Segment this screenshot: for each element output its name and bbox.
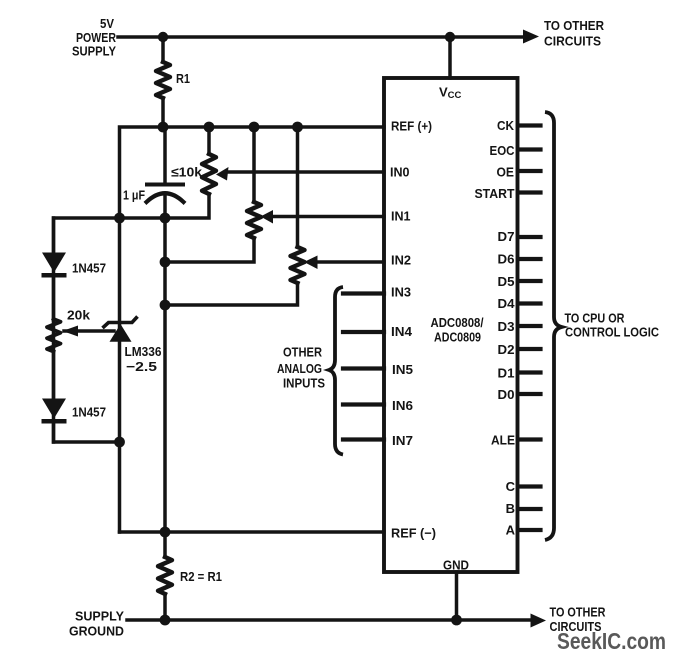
- svg-text:TO OTHER: TO OTHER: [550, 605, 607, 620]
- svg-text:IN2: IN2: [391, 253, 411, 268]
- svg-text:START: START: [475, 186, 515, 201]
- svg-text:D4: D4: [498, 296, 516, 311]
- svg-text:IN5: IN5: [392, 362, 413, 377]
- svg-text:ANALOG: ANALOG: [277, 361, 322, 376]
- svg-text:C: C: [506, 479, 516, 494]
- svg-text:D6: D6: [498, 252, 515, 267]
- svg-text:IN7: IN7: [392, 433, 413, 448]
- svg-text:TO CPU OR: TO CPU OR: [565, 311, 626, 326]
- svg-text:R2 = R1: R2 = R1: [180, 569, 222, 584]
- svg-text:1N457: 1N457: [72, 261, 106, 276]
- svg-text:D2: D2: [498, 342, 515, 357]
- svg-text:−2.5: −2.5: [126, 359, 157, 374]
- svg-text:OTHER: OTHER: [283, 345, 323, 360]
- svg-text:20k: 20k: [67, 308, 91, 323]
- svg-text:GROUND: GROUND: [69, 624, 124, 639]
- svg-text:D0: D0: [498, 387, 515, 402]
- svg-text:SUPPLY: SUPPLY: [72, 44, 116, 59]
- svg-text:≤10k: ≤10k: [171, 165, 203, 180]
- svg-text:REF (+): REF (+): [391, 119, 432, 134]
- svg-text:IN3: IN3: [391, 285, 411, 300]
- svg-text:ALE: ALE: [491, 433, 515, 448]
- svg-text:D1: D1: [498, 366, 515, 381]
- svg-text:SUPPLY: SUPPLY: [75, 609, 124, 624]
- svg-text:D7: D7: [498, 229, 515, 244]
- svg-text:D5: D5: [498, 274, 515, 289]
- svg-text:CK: CK: [497, 118, 515, 133]
- svg-text:IN0: IN0: [390, 165, 410, 180]
- svg-text:SeekIC.com: SeekIC.com: [557, 628, 666, 654]
- svg-text:1 μF: 1 μF: [123, 188, 145, 203]
- svg-text:OE: OE: [497, 165, 515, 180]
- svg-text:CONTROL LOGIC: CONTROL LOGIC: [565, 325, 660, 340]
- svg-text:GND: GND: [443, 558, 469, 573]
- svg-text:CIRCUITS: CIRCUITS: [544, 34, 601, 49]
- svg-text:IN1: IN1: [391, 209, 411, 224]
- svg-text:TO OTHER: TO OTHER: [544, 18, 605, 33]
- svg-text:REF (−): REF (−): [391, 526, 436, 541]
- svg-text:ADC0808/: ADC0808/: [431, 315, 484, 330]
- svg-text:5V: 5V: [100, 16, 114, 31]
- svg-text:ADC0809: ADC0809: [434, 330, 481, 345]
- svg-text:INPUTS: INPUTS: [283, 376, 325, 391]
- svg-text:D3: D3: [498, 319, 515, 334]
- svg-text:IN6: IN6: [392, 398, 413, 413]
- svg-text:1N457: 1N457: [72, 405, 106, 420]
- svg-text:A: A: [506, 523, 516, 538]
- svg-text:IN4: IN4: [391, 324, 413, 339]
- svg-text:LM336: LM336: [125, 344, 162, 359]
- svg-text:R1: R1: [176, 71, 190, 86]
- svg-text:B: B: [506, 501, 515, 516]
- svg-text:EOC: EOC: [490, 143, 516, 158]
